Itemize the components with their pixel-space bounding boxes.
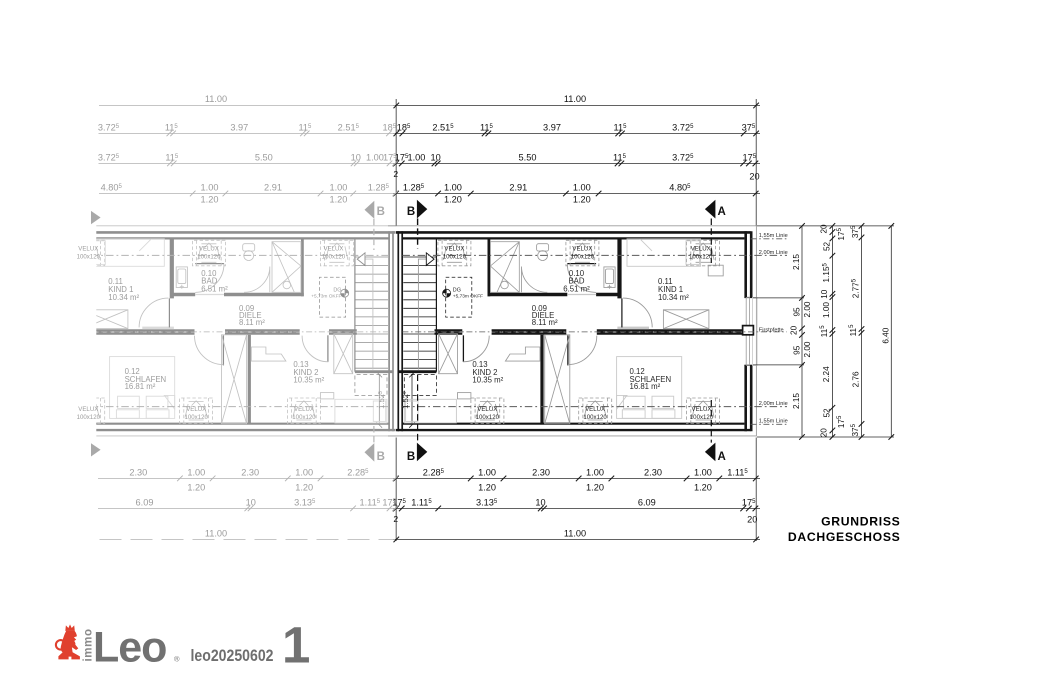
svg-text:2.30: 2.30: [241, 467, 259, 477]
svg-text:VELUX: VELUX: [78, 245, 98, 252]
svg-text:®: ®: [174, 655, 180, 664]
svg-text:2.00: 2.00: [803, 341, 812, 357]
svg-text:1.20: 1.20: [201, 195, 219, 205]
svg-text:1.00: 1.00: [329, 183, 347, 193]
svg-text:100x120: 100x120: [443, 254, 467, 261]
svg-text:8.11 m²: 8.11 m²: [239, 318, 265, 327]
svg-text:2: 2: [393, 514, 398, 524]
svg-text:1.00: 1.00: [586, 467, 604, 477]
svg-text:100x120: 100x120: [197, 254, 221, 261]
svg-text:20: 20: [749, 171, 759, 181]
svg-text:2.15: 2.15: [792, 254, 801, 270]
svg-text:A: A: [718, 206, 726, 218]
svg-text:1,55m Linie: 1,55m Linie: [759, 418, 788, 424]
svg-text:5.50: 5.50: [255, 152, 273, 162]
svg-text:1.00: 1.00: [366, 152, 384, 162]
svg-text:95: 95: [793, 307, 802, 317]
svg-text:1.00: 1.00: [573, 183, 591, 193]
svg-text:+5,73m OKFF: +5,73m OKFF: [453, 294, 483, 300]
svg-text:1.00: 1.00: [407, 152, 425, 162]
svg-text:DACHGESCHOSS: DACHGESCHOSS: [788, 530, 901, 544]
svg-text:Firstpfette: Firstpfette: [759, 327, 784, 333]
svg-text:leo20250602: leo20250602: [191, 647, 274, 665]
svg-text:DG: DG: [333, 287, 341, 293]
svg-text:1.00: 1.00: [444, 183, 462, 193]
svg-text:1.20: 1.20: [444, 195, 462, 205]
svg-text:VELUX: VELUX: [186, 406, 206, 413]
svg-text:6.40: 6.40: [881, 327, 890, 343]
svg-text:2.91: 2.91: [264, 183, 282, 193]
svg-text:VELUX: VELUX: [572, 245, 592, 252]
svg-text:DG: DG: [453, 287, 461, 293]
svg-text:11.00: 11.00: [564, 94, 586, 104]
svg-text:10.34 m²: 10.34 m²: [658, 293, 689, 302]
svg-text:6.09: 6.09: [136, 497, 154, 507]
svg-text:2,00m Linie: 2,00m Linie: [759, 401, 788, 407]
svg-text:2: 2: [393, 169, 398, 179]
svg-text:6.09: 6.09: [638, 497, 656, 507]
svg-text:B: B: [377, 451, 385, 463]
svg-text:2.30: 2.30: [129, 467, 147, 477]
svg-text:10.34 m²: 10.34 m²: [108, 293, 139, 302]
svg-text:3.97: 3.97: [230, 122, 248, 132]
svg-text:1.00: 1.00: [201, 183, 219, 193]
svg-text:1.20: 1.20: [573, 195, 591, 205]
svg-text:1.00: 1.00: [478, 467, 496, 477]
svg-text:VELUX: VELUX: [691, 245, 711, 252]
svg-text:100x120: 100x120: [476, 414, 500, 421]
svg-text:3.97: 3.97: [543, 122, 561, 132]
svg-text:VELUX: VELUX: [199, 245, 219, 252]
svg-text:100x120: 100x120: [185, 414, 209, 421]
svg-text:1.00: 1.00: [295, 467, 313, 477]
svg-text:VELUX: VELUX: [477, 406, 497, 413]
svg-text:1.00: 1.00: [187, 467, 205, 477]
svg-text:1,55m Linie: 1,55m Linie: [759, 233, 788, 239]
svg-text:20: 20: [820, 224, 829, 234]
svg-text:1.20: 1.20: [295, 482, 313, 492]
svg-text:52: 52: [822, 242, 831, 252]
svg-text:20: 20: [820, 428, 829, 438]
svg-text:10.35 m²: 10.35 m²: [293, 376, 324, 385]
svg-text:1.20: 1.20: [694, 482, 712, 492]
svg-text:1.00: 1.00: [694, 467, 712, 477]
svg-text:1.20: 1.20: [478, 482, 496, 492]
svg-text:52: 52: [822, 408, 831, 418]
svg-text:B: B: [377, 206, 385, 218]
svg-text:VELUX: VELUX: [294, 406, 314, 413]
svg-text:100x120: 100x120: [322, 254, 346, 261]
svg-text:11.00: 11.00: [205, 528, 227, 538]
svg-text:1.20: 1.20: [586, 482, 604, 492]
svg-text:5.50: 5.50: [519, 152, 537, 162]
svg-text:2.24: 2.24: [822, 366, 831, 382]
svg-text:100x120: 100x120: [583, 414, 607, 421]
svg-text:6.51 m²: 6.51 m²: [563, 284, 590, 293]
svg-text:16.81 m²: 16.81 m²: [125, 382, 156, 391]
svg-text:B: B: [407, 206, 415, 218]
svg-text:2,00m Linie: 2,00m Linie: [759, 250, 788, 256]
svg-text:VELUX: VELUX: [585, 406, 605, 413]
svg-text:B: B: [407, 451, 415, 463]
svg-text:100x120: 100x120: [689, 254, 713, 261]
svg-text:8.11 m²: 8.11 m²: [532, 318, 558, 327]
svg-text:2.30: 2.30: [532, 467, 550, 477]
svg-text:Leo: Leo: [93, 624, 166, 672]
svg-text:100x120: 100x120: [690, 414, 714, 421]
svg-text:20: 20: [790, 325, 799, 335]
svg-text:100x120: 100x120: [77, 414, 101, 421]
svg-text:1.20: 1.20: [329, 195, 347, 205]
svg-text:11.00: 11.00: [205, 94, 227, 104]
svg-text:10: 10: [535, 497, 545, 507]
svg-text:2.76: 2.76: [851, 371, 860, 387]
svg-text:2.00: 2.00: [803, 301, 812, 317]
svg-text:1: 1: [282, 617, 310, 674]
svg-text:20: 20: [747, 514, 757, 524]
svg-text:10: 10: [351, 152, 361, 162]
svg-text:1.20: 1.20: [187, 482, 205, 492]
svg-text:100x120: 100x120: [571, 254, 595, 261]
svg-text:2.30: 2.30: [644, 467, 662, 477]
svg-text:6.51 m²: 6.51 m²: [201, 284, 228, 293]
svg-text:10.35 m²: 10.35 m²: [472, 376, 503, 385]
svg-text:10: 10: [820, 289, 829, 299]
svg-text:VELUX: VELUX: [692, 406, 712, 413]
svg-text:+5,73m OKFF: +5,73m OKFF: [311, 294, 341, 300]
svg-text:10: 10: [246, 497, 256, 507]
svg-text:2.15: 2.15: [792, 393, 801, 409]
svg-text:A: A: [718, 451, 726, 463]
svg-text:2.91: 2.91: [509, 183, 527, 193]
svg-text:10: 10: [430, 152, 440, 162]
svg-text:16.81 m²: 16.81 m²: [630, 382, 661, 391]
svg-text:100x120: 100x120: [77, 254, 101, 261]
svg-text:VELUX: VELUX: [444, 245, 464, 252]
svg-text:GRUNDRISS: GRUNDRISS: [821, 514, 900, 528]
svg-text:100x120: 100x120: [292, 414, 316, 421]
svg-text:11.00: 11.00: [564, 528, 586, 538]
svg-text:VELUX: VELUX: [324, 245, 344, 252]
svg-text:1.00: 1.00: [822, 302, 831, 318]
svg-text:VELUX: VELUX: [78, 406, 98, 413]
svg-text:95: 95: [793, 345, 802, 355]
